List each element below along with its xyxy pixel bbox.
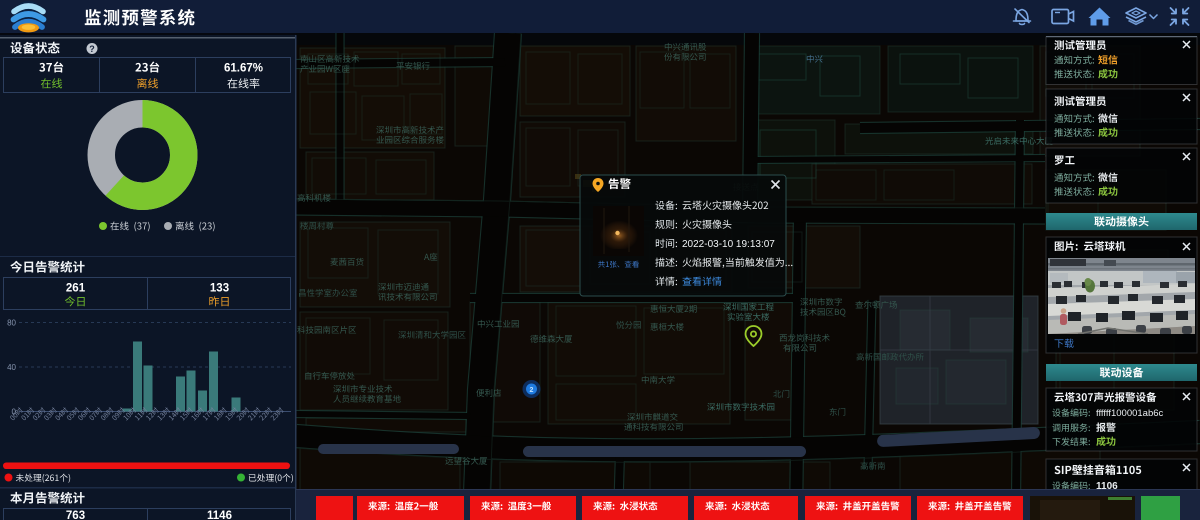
svg-text:763: 763: [66, 510, 85, 520]
svg-text:?: ?: [89, 44, 95, 54]
svg-text:61.67%: 61.67%: [224, 63, 263, 75]
svg-text:80: 80: [7, 319, 16, 328]
svg-text:133: 133: [210, 283, 229, 295]
svg-text:2022-03-10 19:13:07: 2022-03-10 19:13:07: [682, 239, 775, 250]
svg-text:40: 40: [7, 363, 16, 372]
svg-text:2: 2: [530, 387, 534, 394]
svg-text:261: 261: [66, 283, 86, 295]
svg-text:ffffff100001ab6c: ffffff100001ab6c: [1096, 408, 1164, 419]
svg-text:1146: 1146: [207, 510, 232, 520]
